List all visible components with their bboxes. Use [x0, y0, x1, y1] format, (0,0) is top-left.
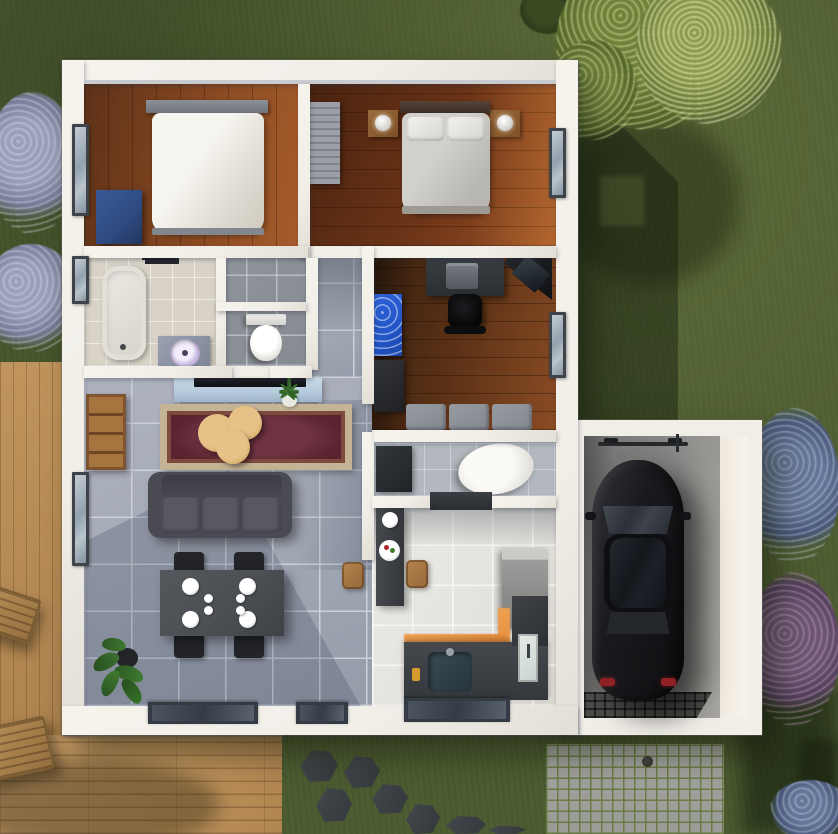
- bookshelf: [86, 394, 126, 470]
- bench-cushion: [492, 404, 532, 430]
- potted-plant: [88, 636, 152, 712]
- wall: [216, 302, 306, 311]
- car-sunroof: [610, 538, 666, 608]
- sofa-cushion: [163, 497, 201, 533]
- fruit: [384, 545, 389, 550]
- small-plate: [204, 594, 213, 603]
- toilet-tank: [246, 314, 286, 325]
- wall: [84, 246, 308, 258]
- bar-stool: [342, 562, 364, 589]
- lamp: [375, 115, 391, 131]
- kitchen-window: [404, 698, 510, 722]
- wall: [362, 246, 374, 404]
- pegboard: [374, 294, 402, 356]
- dining-table: [160, 570, 284, 636]
- roof-edge: [84, 80, 556, 84]
- sofa-cushion: [203, 497, 241, 533]
- floor-plan-render: [0, 0, 838, 834]
- office-chair: [448, 294, 482, 328]
- window: [72, 256, 89, 304]
- wall: [298, 84, 310, 258]
- coffee-table: [216, 430, 250, 464]
- glass-door: [148, 702, 258, 724]
- plate: [182, 611, 199, 628]
- wall: [270, 366, 312, 378]
- plate: [382, 512, 398, 528]
- bench-cushion: [449, 404, 489, 430]
- bed-duvet: [152, 113, 264, 233]
- pillow: [447, 117, 484, 141]
- small-plate: [236, 594, 245, 603]
- bed-headboard: [146, 100, 268, 113]
- wall: [84, 366, 232, 378]
- dining-chair: [234, 634, 264, 658]
- wall: [306, 258, 318, 370]
- bicycle-handlebar: [676, 434, 679, 452]
- toilet-bowl: [250, 325, 282, 361]
- kitchen-sink: [428, 652, 472, 692]
- dining-chair: [174, 634, 204, 658]
- window: [549, 312, 566, 378]
- wall: [374, 430, 556, 442]
- sink-drain: [182, 350, 188, 356]
- drain-cap: [642, 756, 653, 767]
- car-mirror: [585, 512, 596, 520]
- wall: [366, 246, 556, 258]
- window: [72, 472, 89, 566]
- bed-footboard: [152, 228, 264, 235]
- car-taillight: [661, 678, 676, 686]
- wall: [216, 258, 226, 366]
- cabinet-handle: [527, 644, 530, 658]
- cabinet-door: [518, 634, 538, 682]
- wall: [372, 496, 430, 508]
- driveway: [546, 744, 724, 834]
- car-mirror: [680, 512, 691, 520]
- window: [549, 128, 566, 198]
- lamp: [497, 115, 513, 131]
- faucet: [446, 648, 454, 656]
- palm-plant: [266, 372, 312, 414]
- plate: [182, 578, 199, 595]
- glass-door: [296, 702, 348, 724]
- bathtub-drain: [120, 344, 126, 350]
- car: [592, 460, 684, 700]
- window: [72, 124, 89, 216]
- bed-footboard: [402, 206, 490, 214]
- bed-headboard: [400, 101, 490, 113]
- garage-inner-wall: [720, 436, 748, 718]
- wall: [492, 496, 556, 508]
- small-plate: [204, 606, 213, 615]
- cabinet: [374, 360, 404, 412]
- office-chair-back: [444, 326, 486, 334]
- plate: [239, 578, 256, 595]
- car-windshield: [598, 506, 678, 534]
- pillow: [407, 117, 444, 141]
- wardrobe: [308, 102, 340, 184]
- washing-machine: [376, 446, 412, 492]
- printer: [446, 263, 478, 289]
- bicycle-wheel: [604, 438, 618, 443]
- fruit: [390, 548, 395, 553]
- bicycle-wheel: [668, 438, 682, 443]
- bottle: [412, 668, 420, 681]
- dresser: [96, 190, 142, 244]
- tree-shadow: [560, 115, 740, 285]
- sofa-back: [162, 475, 282, 497]
- car-rear-window: [602, 612, 674, 634]
- small-plate: [236, 606, 245, 615]
- sofa-cushion: [243, 497, 281, 533]
- bar-stool: [406, 560, 428, 588]
- door-mat: [430, 492, 492, 510]
- bench-cushion: [406, 404, 446, 430]
- car-taillight: [600, 678, 615, 686]
